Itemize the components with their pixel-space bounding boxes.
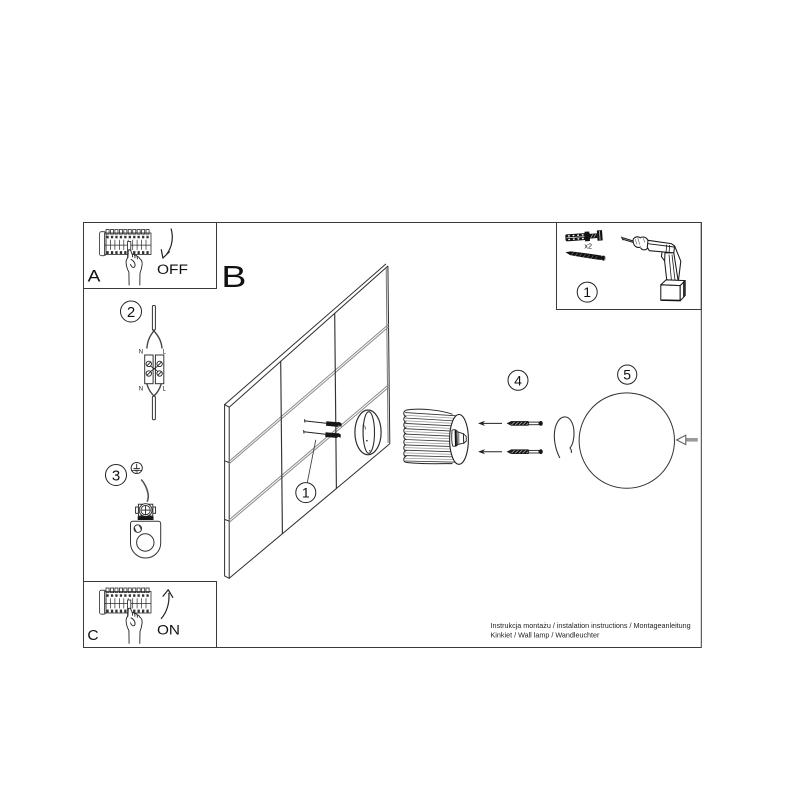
- svg-text:3: 3: [112, 467, 120, 484]
- svg-text:C: C: [87, 627, 98, 644]
- svg-text:Kinkiet / Wall lamp / Wandleuc: Kinkiet / Wall lamp / Wandleuchter: [491, 630, 601, 639]
- svg-text:N: N: [139, 387, 143, 393]
- svg-text:ON: ON: [157, 621, 180, 637]
- svg-text:1: 1: [583, 284, 591, 300]
- svg-text:N: N: [139, 350, 143, 356]
- svg-text:OFF: OFF: [157, 262, 188, 277]
- svg-text:4: 4: [514, 372, 522, 388]
- svg-text:2: 2: [127, 304, 135, 321]
- svg-text:1: 1: [302, 485, 310, 501]
- svg-text:Instrukcja montażu / instalati: Instrukcja montażu / instalation instruc…: [491, 621, 691, 630]
- svg-text:5: 5: [623, 367, 631, 383]
- svg-text:x2: x2: [584, 242, 592, 251]
- svg-text:A: A: [88, 268, 101, 286]
- svg-text:B: B: [221, 259, 246, 294]
